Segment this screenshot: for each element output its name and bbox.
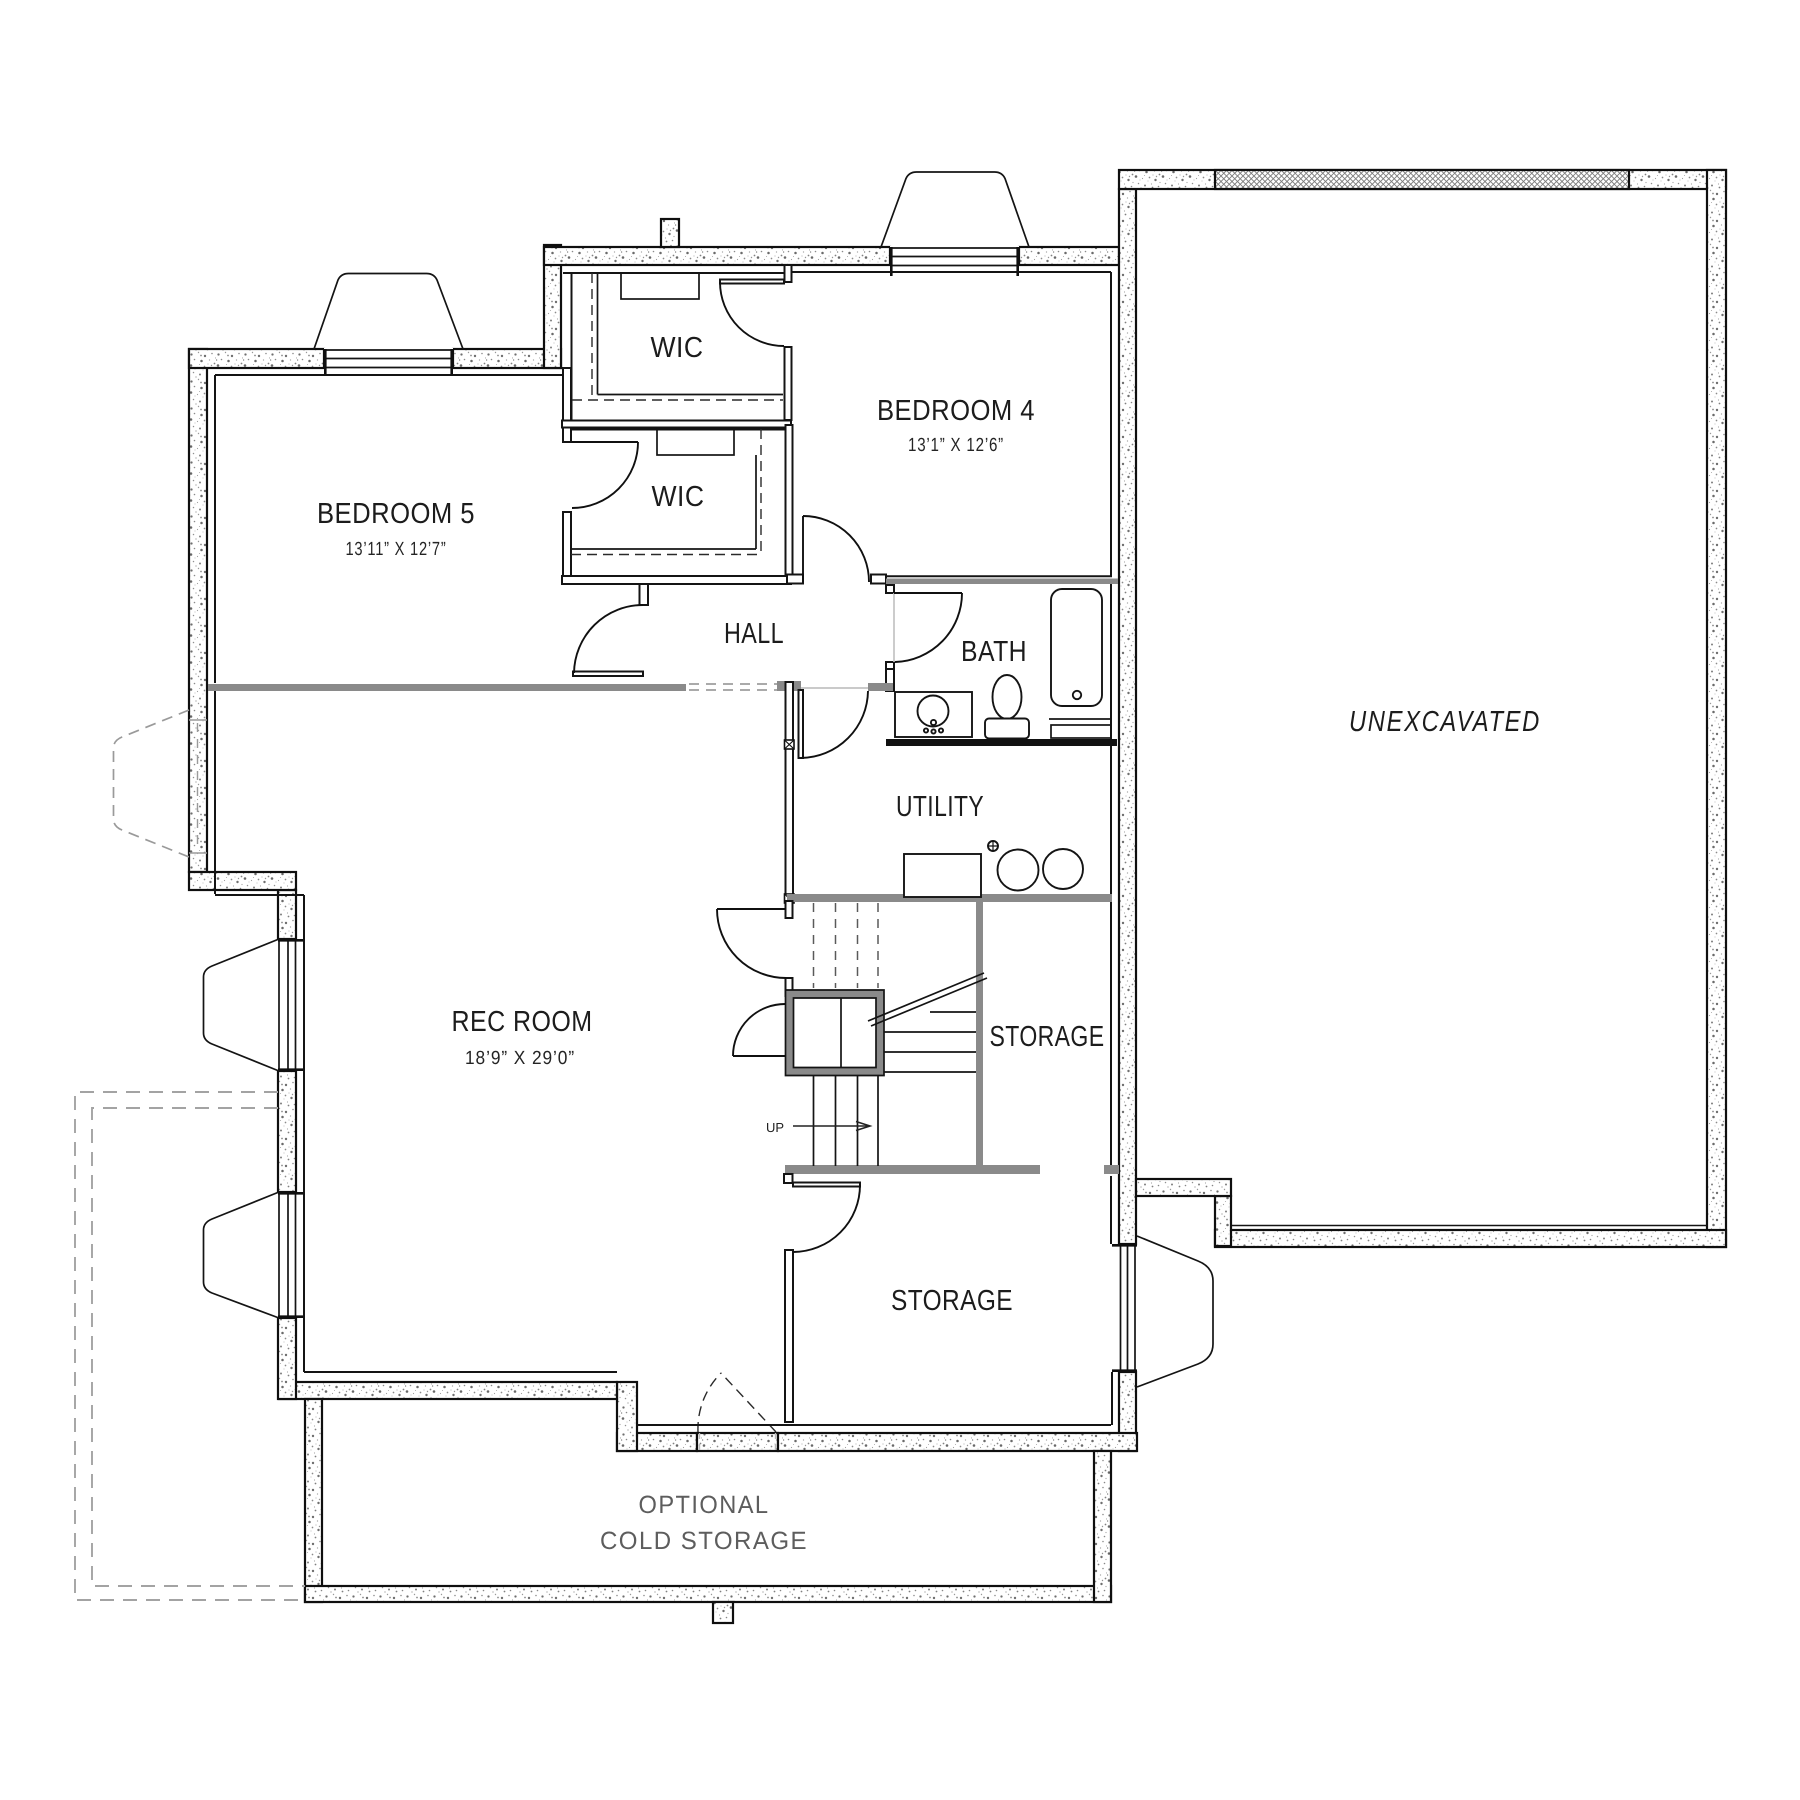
- svg-text:UNEXCAVATED: UNEXCAVATED: [1349, 706, 1541, 738]
- svg-text:WIC: WIC: [652, 481, 705, 513]
- svg-text:BEDROOM 4: BEDROOM 4: [877, 395, 1035, 427]
- svg-text:OPTIONAL: OPTIONAL: [639, 1491, 770, 1519]
- svg-text:BEDROOM 5: BEDROOM 5: [317, 498, 475, 530]
- svg-text:HALL: HALL: [724, 618, 784, 650]
- svg-text:UP: UP: [766, 1120, 784, 1135]
- svg-text:REC ROOM: REC ROOM: [452, 1006, 593, 1038]
- svg-text:COLD STORAGE: COLD STORAGE: [600, 1527, 808, 1555]
- svg-text:13’1” X 12’6”: 13’1” X 12’6”: [908, 435, 1004, 456]
- svg-text:BATH: BATH: [961, 636, 1027, 668]
- svg-text:STORAGE: STORAGE: [990, 1021, 1105, 1053]
- svg-text:18’9” X 29’0”: 18’9” X 29’0”: [465, 1048, 575, 1069]
- svg-text:UTILITY: UTILITY: [896, 791, 984, 823]
- svg-text:WIC: WIC: [651, 332, 704, 364]
- svg-text:13’11” X 12’7”: 13’11” X 12’7”: [346, 539, 447, 560]
- svg-text:STORAGE: STORAGE: [891, 1285, 1013, 1317]
